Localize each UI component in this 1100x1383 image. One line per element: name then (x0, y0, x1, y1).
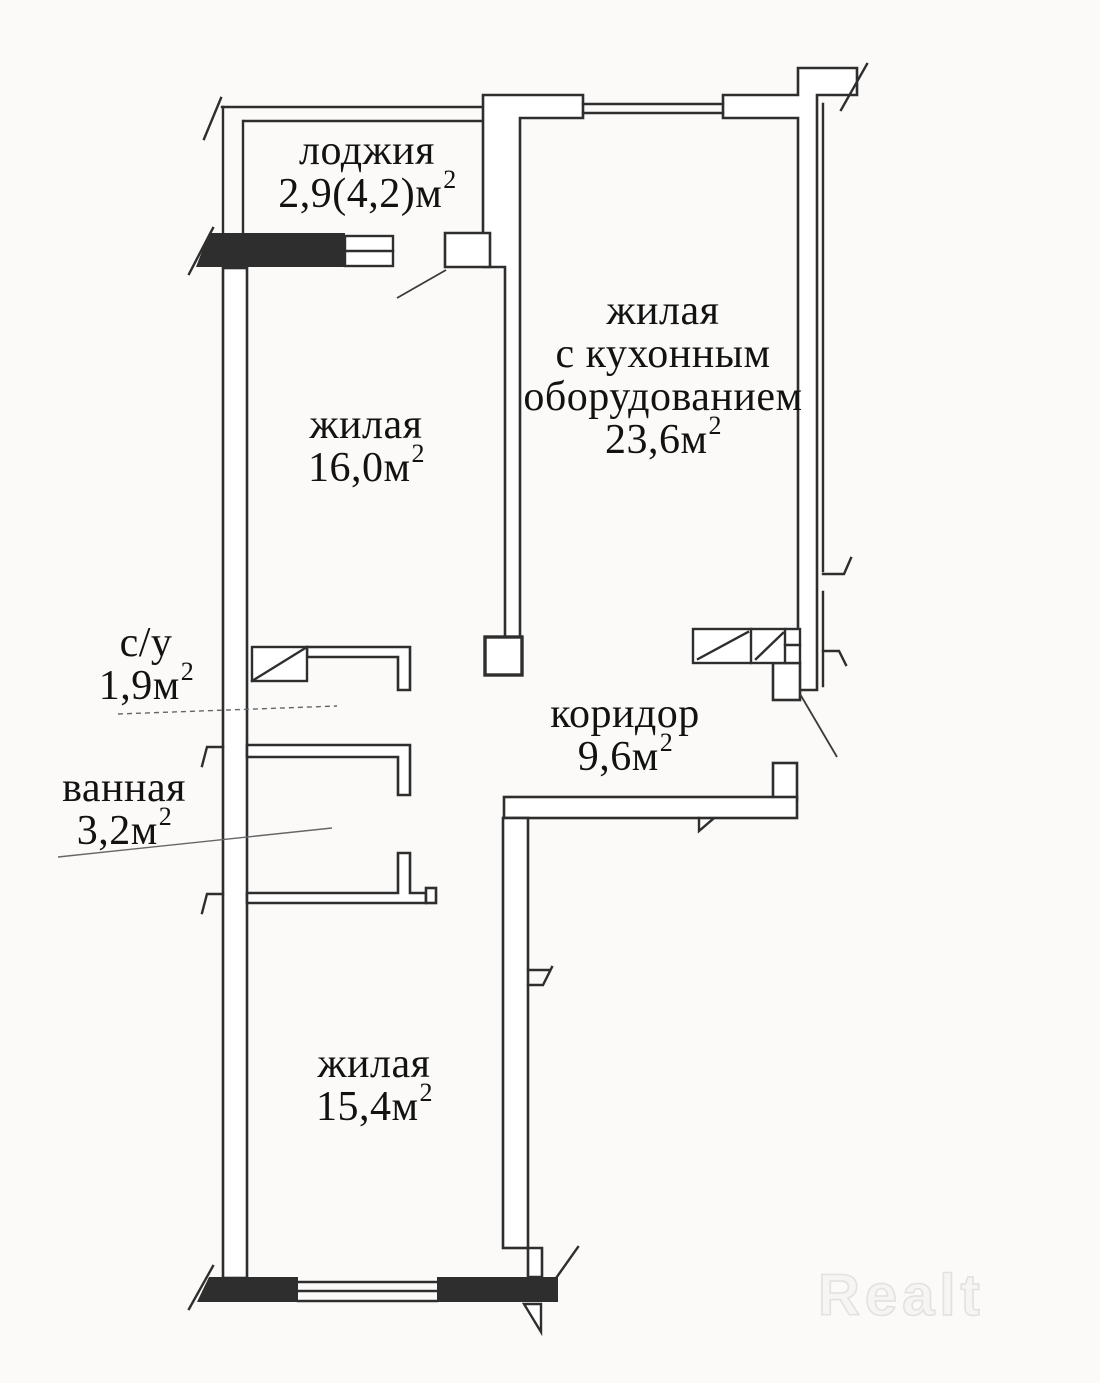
entrance-door-swing (800, 694, 837, 757)
realt-watermark-logo: Realt (818, 1262, 1048, 1329)
room-label-living-16: жилая 16,0м2 (308, 404, 424, 490)
room-name: жилая (523, 290, 802, 333)
room-name: лоджия (278, 130, 456, 173)
room-name: жилая (308, 404, 424, 447)
room-area: 23,6м2 (523, 419, 802, 462)
room-name: жилая (316, 1043, 432, 1086)
room-label-bathroom: ванная 3,2м2 (62, 767, 186, 853)
room-label-loggia: лоджия 2,9(4,2)м2 (278, 130, 456, 216)
room-label-corridor: коридор 9,6м2 (550, 693, 700, 779)
room-name: с кухонным (523, 333, 802, 376)
room-label-living-kitchen: жилая с кухонным оборудованием 23,6м2 (523, 290, 802, 462)
room-area: 3,2м2 (62, 810, 186, 853)
room-area: 16,0м2 (308, 447, 424, 490)
room-name: коридор (550, 693, 700, 736)
room-label-wc: с/у 1,9м2 (99, 622, 194, 708)
room-area: 15,4м2 (316, 1086, 432, 1129)
room-area: 1,9м2 (99, 665, 194, 708)
floor-plan-page: лоджия 2,9(4,2)м2 жилая 16,0м2 жилая с к… (0, 0, 1100, 1383)
room-name: оборудованием (523, 376, 802, 419)
room-area: 2,9(4,2)м2 (278, 173, 456, 216)
balcony-door-swing (397, 270, 446, 298)
room-area: 9,6м2 (550, 736, 700, 779)
room-name: с/у (99, 622, 194, 665)
room-label-living-15: жилая 15,4м2 (316, 1043, 432, 1129)
